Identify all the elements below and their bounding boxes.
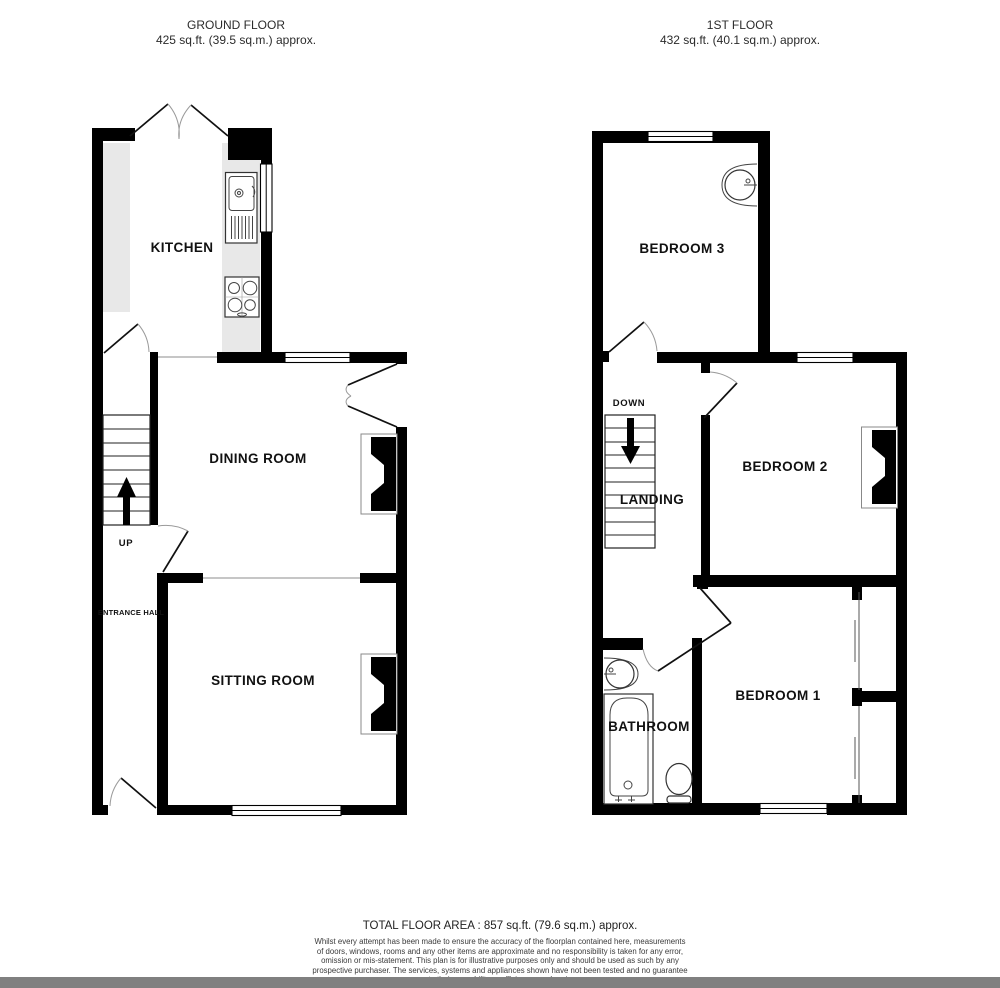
bathroom-basin [604, 658, 638, 690]
bathtub [604, 694, 653, 804]
kitchen-sink [226, 173, 258, 244]
wall [767, 352, 797, 363]
hall-dining-door [158, 525, 188, 572]
window [232, 806, 341, 816]
first-floor-plan: BEDROOM 3 DOWN LANDING BEDROOM 2 BATHROO… [592, 131, 907, 815]
sitting-chimney-breast [361, 654, 397, 734]
total-floor-area: TOTAL FLOOR AREA : 857 sq.ft. (79.6 sq.m… [0, 920, 1000, 932]
wall [693, 575, 897, 587]
up-label: UP [119, 538, 133, 549]
floorplan-drawing: KITCHEN DINING ROOM SITTING ROOM UP ENTR… [0, 0, 1000, 910]
wall [827, 803, 907, 815]
bedroom3-label: BEDROOM 3 [639, 241, 724, 256]
landing-label: LANDING [620, 492, 684, 507]
wall [592, 131, 603, 815]
wall [592, 803, 760, 815]
wall [217, 352, 285, 363]
disclaimer-line: of doors, windows, rooms and any other i… [0, 947, 1000, 957]
dining-chimney-breast [361, 434, 397, 514]
dining-french-doors [346, 364, 397, 427]
wall [701, 363, 710, 373]
kitchen-hall-door [104, 324, 149, 353]
dining-room-label: DINING ROOM [209, 451, 306, 466]
counter-left [103, 143, 130, 312]
wall [701, 415, 710, 577]
wall [261, 128, 272, 164]
bedroom1-door [700, 588, 731, 623]
ground-floor-plan: KITCHEN DINING ROOM SITTING ROOM UP ENTR… [92, 104, 407, 816]
disclaimer-line: omission or mis-statement. This plan is … [0, 956, 1000, 966]
staircase-up [103, 415, 150, 525]
wall [758, 131, 770, 363]
window [797, 353, 853, 363]
bedroom2-label: BEDROOM 2 [742, 459, 827, 474]
bedroom3-door [609, 322, 657, 352]
window [760, 804, 827, 814]
wall [852, 691, 897, 702]
entrance-hall-label: ENTRANCE HALL [98, 608, 165, 617]
kitchen-label: KITCHEN [151, 240, 214, 255]
wall [692, 638, 702, 815]
wall [150, 352, 158, 525]
wall [896, 352, 907, 815]
wall [603, 351, 609, 362]
wall [852, 795, 862, 804]
wall [657, 352, 767, 363]
floorplan-page: GROUND FLOOR 425 sq.ft. (39.5 sq.m.) app… [0, 0, 1000, 988]
wall [360, 573, 407, 583]
back-door [130, 104, 228, 139]
window [285, 353, 350, 363]
down-label: DOWN [613, 398, 645, 409]
kitchen-hob [225, 277, 259, 317]
bedroom2-chimney-breast [862, 427, 898, 508]
disclaimer-line: Whilst every attempt has been made to en… [0, 937, 1000, 947]
bathroom-door [643, 623, 731, 671]
bedroom1-label: BEDROOM 1 [735, 688, 820, 703]
staircase-down [605, 415, 655, 548]
wall [261, 232, 272, 353]
bedroom2-door [704, 372, 737, 418]
bathroom-label: BATHROOM [608, 719, 690, 734]
wall [92, 128, 135, 141]
disclaimer-line: prospective purchaser. The services, sys… [0, 966, 1000, 976]
wall [92, 128, 103, 815]
window [648, 132, 713, 142]
wall [592, 638, 643, 650]
wall [396, 427, 407, 815]
wall [157, 805, 233, 815]
window [261, 164, 273, 232]
wall [852, 587, 862, 600]
bedroom3-basin [722, 164, 757, 206]
wall [396, 352, 407, 364]
wall [697, 575, 708, 589]
wall [92, 805, 108, 815]
wall [341, 805, 407, 815]
footer-gray-bar [0, 977, 1000, 988]
toilet [666, 764, 692, 804]
sitting-room-label: SITTING ROOM [211, 673, 315, 688]
front-door [110, 778, 156, 808]
